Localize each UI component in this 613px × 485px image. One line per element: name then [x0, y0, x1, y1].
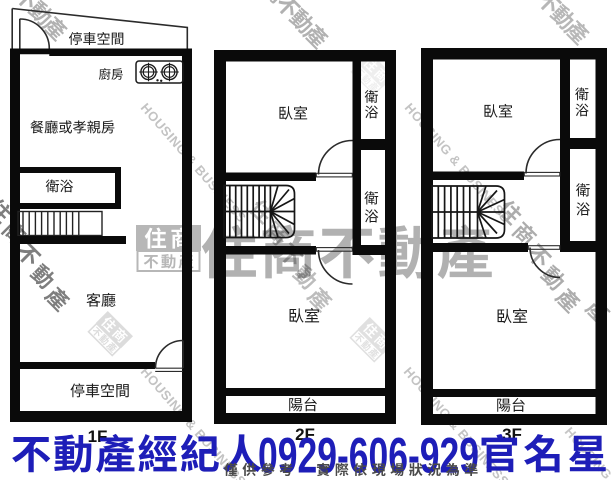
- svg-text:1F: 1F: [88, 427, 108, 446]
- svg-text:0929-606-929: 0929-606-929: [258, 428, 479, 481]
